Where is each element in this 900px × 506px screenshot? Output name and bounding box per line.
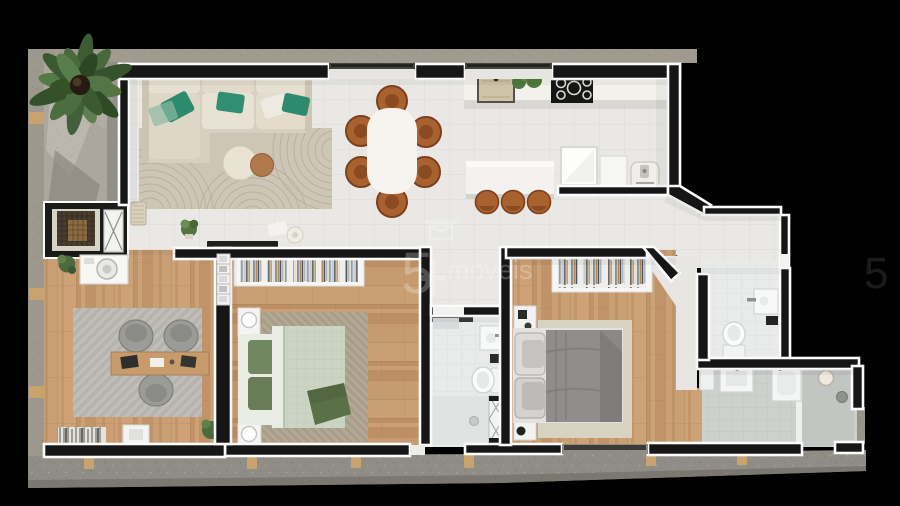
- svg-text:5: 5: [401, 241, 433, 306]
- svg-text:móveis: móveis: [447, 255, 533, 285]
- svg-text:5: 5: [864, 249, 888, 298]
